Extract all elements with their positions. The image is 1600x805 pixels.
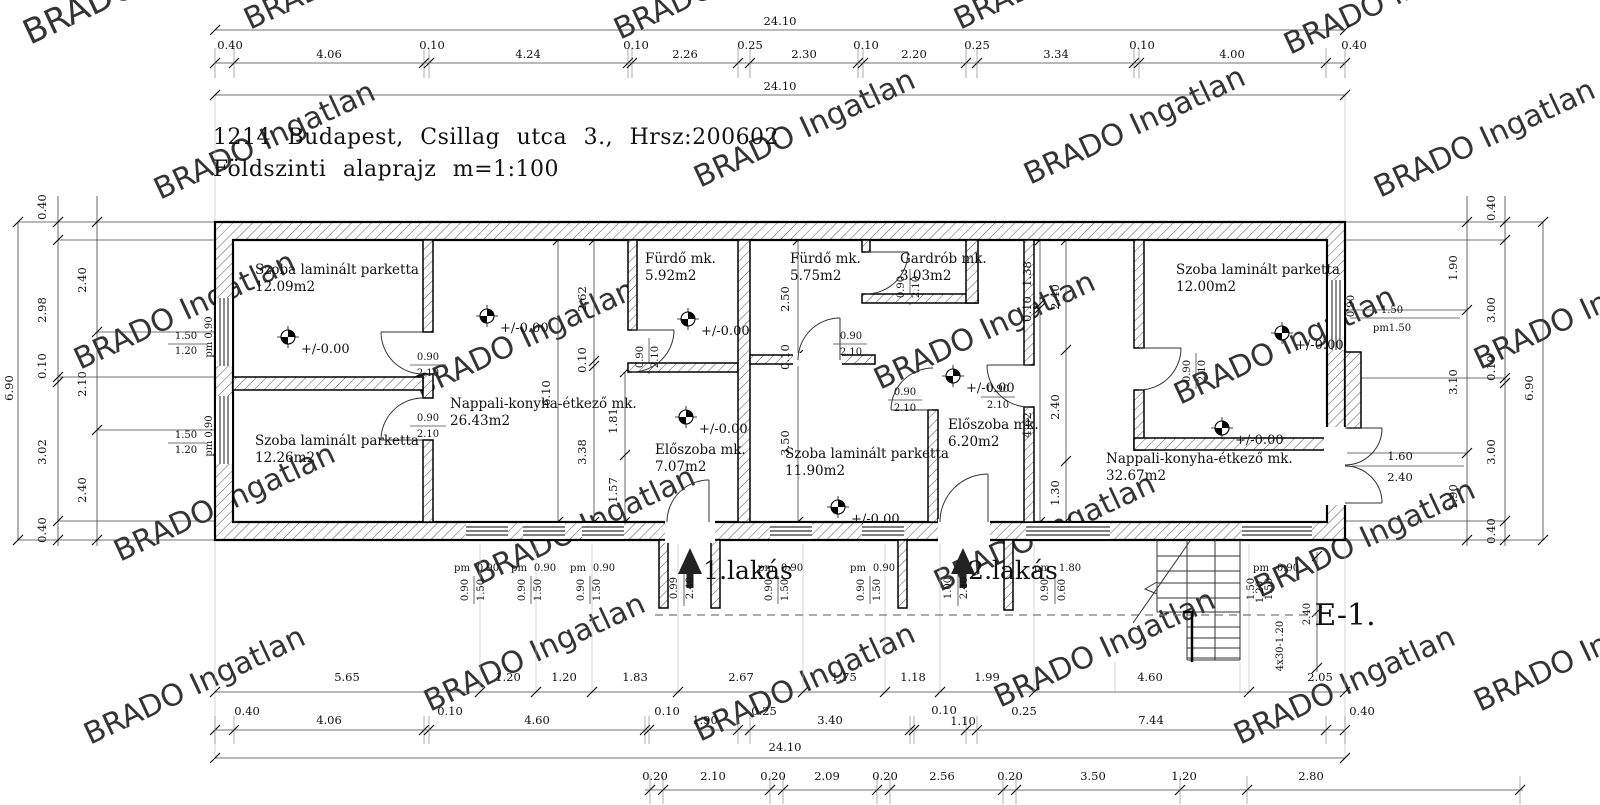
dim-label: 1.20 (175, 445, 197, 456)
dim-label: 2.40 (1048, 284, 1062, 310)
interior-wall (862, 240, 870, 252)
dim-label: 0.10 (1484, 355, 1498, 381)
dim-label: 0.90 (873, 563, 895, 574)
dim-label: pm 0.90 (204, 415, 215, 456)
watermark-text: BRADO Ingatlan (1369, 72, 1600, 205)
dim-label: 0.90 (417, 352, 439, 363)
dim-label: 2.10 (700, 769, 726, 783)
room-area: 26.43m2 (450, 413, 510, 429)
interior-wall (423, 440, 433, 522)
dim-label: 2.26 (672, 47, 698, 61)
dim-label: 6.90 (2, 375, 16, 401)
dim-label: 1.20 (495, 670, 521, 684)
interior-wall (233, 377, 423, 390)
dim-label: 0.40 (1349, 704, 1375, 718)
dim-label: 3.38 (575, 439, 589, 465)
interior-wall (738, 240, 750, 522)
dim-label: 0.40 (1484, 195, 1498, 221)
dim-label: 0.25 (751, 704, 777, 718)
level-label: +/-0.00 (699, 422, 748, 437)
dim-label: 1.60 (1387, 449, 1413, 463)
dim-label: 0.40 (35, 194, 49, 220)
door-opening (938, 519, 990, 543)
title-line-2: Földszinti alaprajz m=1:100 (213, 154, 779, 186)
dim-label: 4.06 (316, 47, 342, 61)
dim-label: 0.25 (1011, 704, 1037, 718)
dim-label: 2.09 (814, 769, 840, 783)
level-marker (277, 326, 299, 348)
dim-label: 2.40 (75, 267, 89, 293)
dim-label: 24.10 (764, 14, 797, 28)
dim-label: 2.10 (911, 276, 922, 298)
dim-label: 0.99 (669, 577, 680, 599)
interior-wall (928, 410, 938, 522)
title-line-1: 1214 Budapest, Csillag utca 3., Hrsz:200… (213, 122, 779, 154)
dim-label: 0.40 (1341, 38, 1367, 52)
dim-label: 3.34 (1043, 47, 1069, 61)
dim-label: 4.00 (1219, 47, 1245, 61)
title-block: 1214 Budapest, Csillag utca 3., Hrsz:200… (213, 122, 779, 186)
door-swing (940, 474, 988, 522)
dim-label: 0.90 (1346, 295, 1357, 317)
dim-label: pm (454, 563, 470, 574)
dim-label: 0.90 (460, 579, 471, 601)
dim-label: 0.10 (623, 38, 649, 52)
level-label: +/-0.00 (701, 324, 750, 339)
dim-label: 0.90 (477, 563, 499, 574)
door-opening (793, 353, 842, 366)
watermark-text: BRADO Ingatlan (79, 619, 311, 752)
dim-label: 2.05 (1307, 670, 1333, 684)
dim-label: 0.25 (737, 38, 763, 52)
dim-label: pm (570, 563, 586, 574)
interior-wall (1345, 352, 1361, 428)
level-label: +/-0.00 (500, 321, 549, 336)
dim-label: 0.10 (654, 704, 680, 718)
room-area: 7.07m2 (655, 459, 706, 475)
dim-label: 2.20 (901, 47, 927, 61)
dim-label: 24.10 (769, 740, 802, 754)
room-name: Fürdő mk. (645, 251, 716, 267)
dim-label: 3.00 (1484, 439, 1498, 465)
dim-label: 3.00 (1484, 297, 1498, 323)
dim-label: 3.40 (817, 713, 843, 727)
level-marker (827, 496, 849, 518)
dim-label: 0.20 (760, 769, 786, 783)
watermark-text: BRADO Ingatlan (1019, 59, 1251, 192)
dim-label: 0.60 (1057, 579, 1068, 601)
watermark-text: BRADO Ingatlan (1169, 279, 1401, 412)
room-area: 12.26m2 (255, 450, 315, 466)
interior-wall (1134, 438, 1327, 450)
dim-label: 2.10 (650, 346, 661, 368)
level-label: +/-0.00 (851, 512, 900, 527)
door-swing (1345, 466, 1382, 503)
level-label: +/-0.00 (301, 342, 350, 357)
door-swing (1345, 428, 1382, 465)
dim-label: 1.50 (1264, 578, 1275, 600)
interior-wall (898, 540, 907, 608)
dim-label: 1.38 (1020, 261, 1034, 287)
dim-label: 0.90 (856, 579, 867, 601)
door-opening (1324, 427, 1347, 505)
dim-label: 4.62 (1020, 412, 1034, 438)
dim-label: 0.90 (417, 413, 439, 424)
dim-label: pm (1253, 563, 1269, 574)
dim-label: 1.90 (1446, 484, 1460, 510)
dim-label: 2.80 (1298, 769, 1324, 783)
dim-label: 2.98 (35, 297, 49, 323)
watermark-text: BRADO Ingatlan (1279, 0, 1511, 62)
dim-label: 2.50 (778, 286, 792, 312)
level-label: +/-0.00 (1235, 433, 1284, 448)
dim-label: 2.40 (1048, 394, 1062, 420)
level-marker (476, 305, 498, 327)
dim-label: 0.90 (840, 331, 862, 342)
dim-label: 0.90 (534, 563, 556, 574)
dim-label: 2.10 (894, 403, 916, 414)
watermark-text: BRADO Ingatlan (409, 272, 641, 405)
dim-label: 1.50 (175, 430, 197, 441)
dim-label: 0.10 (1129, 38, 1155, 52)
dim-label: 0.10 (437, 704, 463, 718)
dim-label: 4.06 (316, 713, 342, 727)
dim-label: 1.50 (476, 579, 487, 601)
dim-label: 1.20 (175, 346, 197, 357)
dim-label: 2.56 (929, 769, 955, 783)
dim-label: 0.90 (517, 579, 528, 601)
dim-label: 0.10 (1020, 296, 1034, 322)
room-area: 3.03m2 (900, 268, 951, 284)
watermark-text: BRADO Ingatlan (989, 582, 1221, 715)
dim-label: 5.65 (334, 670, 360, 684)
room-name: Gardrób mk. (900, 251, 987, 267)
dim-label: 0.90 (1182, 360, 1193, 382)
dim-label: 0.10 (575, 347, 589, 373)
dim-label: 24.10 (764, 79, 797, 93)
dim-label: 0.10 (853, 38, 879, 52)
dim-label: 0.90 (576, 579, 587, 601)
dim-label: 1.50 (1381, 305, 1403, 316)
dim-label: 0.40 (35, 517, 49, 543)
dim-label: 0.40 (234, 704, 260, 718)
dim-label: 6.90 (1522, 375, 1536, 401)
level-marker (677, 308, 699, 330)
dim-label: 0.20 (997, 769, 1023, 783)
dim-label: 4.24 (515, 47, 541, 61)
dim-label: 2.10 (840, 347, 862, 358)
dim-label: 0.40 (217, 38, 243, 52)
dim-label: 2.67 (728, 670, 754, 684)
dim-label: 3.50 (778, 430, 792, 456)
dim-label: 0.20 (642, 769, 668, 783)
dim-label: 2.10 (987, 400, 1009, 411)
dim-label: 0.10 (35, 353, 49, 379)
dim-label: pm (850, 563, 866, 574)
dim-label: 0.20 (872, 769, 898, 783)
dim-label: 1.30 (1048, 480, 1062, 506)
dim-label: 0.90 (1040, 579, 1051, 601)
dim-label: 0.90 (764, 579, 775, 601)
room-area: 32.67m2 (1106, 468, 1166, 484)
dim-label: 0.90 (896, 276, 907, 298)
dim-label: 1.83 (622, 670, 648, 684)
dim-label: 2.10 (75, 371, 89, 397)
level-marker (675, 406, 697, 428)
watermark-text: BRADO Ingatlan (1229, 619, 1461, 752)
watermark-text: BRADO Ingatlan (239, 0, 471, 37)
dim-label: pm (1034, 563, 1050, 574)
interior-wall (966, 240, 978, 303)
interior-wall (423, 240, 433, 332)
dim-label: 0.90 (987, 384, 1009, 395)
dim-label: 1.10 (950, 714, 976, 728)
dim-label: 2.62 (575, 286, 589, 312)
watermark-text: BRADO Ingatlan (1469, 586, 1600, 719)
room-area: 11.90m2 (785, 463, 845, 479)
dim-label: 1.90 (1446, 255, 1460, 281)
room-name: Nappali-konyha-étkező mk. (1106, 451, 1293, 467)
interior-wall (628, 240, 637, 330)
floor-plan-drawing: BRADO IngatlanBRADO IngatlanBRADO Ingatl… (0, 0, 1600, 805)
watermark-layer: BRADO IngatlanBRADO IngatlanBRADO Ingatl… (17, 0, 1600, 752)
dim-label: 1.50 (592, 579, 603, 601)
dim-label: 1.18 (900, 670, 926, 684)
dim-label: 2.10 (1197, 360, 1208, 382)
room-area: 12.09m2 (255, 279, 315, 295)
dim-label: 0.10 (778, 344, 792, 370)
dim-label: 1.57 (606, 477, 620, 503)
dim-label: 0.40 (1484, 518, 1498, 544)
interior-wall (659, 540, 668, 608)
watermark-text: BRADO Ingatlan (419, 586, 651, 719)
dim-label: 1.81 (606, 408, 620, 434)
room-area: 6.20m2 (948, 434, 999, 450)
watermark-text: BRADO Ingatlan (949, 0, 1181, 37)
stair-direction-arrow (1145, 582, 1157, 594)
dim-label: 1.20 (1171, 769, 1197, 783)
dim-label: 7.44 (1138, 713, 1164, 727)
floor-plan-page: BRADO IngatlanBRADO IngatlanBRADO Ingatl… (0, 0, 1600, 805)
watermark-text: BRADO Ingatlan (689, 616, 921, 749)
dim-label: 4.60 (1137, 670, 1163, 684)
dim-label: 2.40 (75, 477, 89, 503)
room-area: 5.92m2 (645, 268, 696, 284)
dim-label: 4.60 (524, 713, 550, 727)
dim-label: 1.00 (943, 577, 954, 599)
dim-label: 3.10 (1446, 369, 1460, 395)
dim-label: 0.90 (635, 346, 646, 368)
dim-label: 1.20 (551, 670, 577, 684)
dim-label: 1.75 (831, 670, 857, 684)
dim-label: 0.90 (894, 387, 916, 398)
door-opening (665, 519, 715, 543)
dim-label: 2.40 (1302, 603, 1313, 625)
dim-label: 6.10 (539, 380, 553, 406)
dim-label: 1.80 (1059, 563, 1081, 574)
level-label: +/-0.00 (1295, 338, 1344, 353)
dim-label: 1.50 (175, 331, 197, 342)
room-name: Szoba laminált parketta (255, 433, 419, 449)
dim-label: 2.10 (417, 368, 439, 379)
dim-label: 1.50 (780, 579, 791, 601)
dim-label: pm (758, 563, 774, 574)
dim-label: 0.25 (964, 38, 990, 52)
dim-label: pm 0.90 (204, 316, 215, 357)
level-marker (1211, 417, 1233, 439)
dim-label: 2.30 (791, 47, 817, 61)
dim-label: 2.40 (685, 577, 696, 599)
dim-label: 2.10 (417, 429, 439, 440)
room-name: Előszoba mk. (655, 442, 746, 458)
dim-label: 0.10 (419, 38, 445, 52)
room-area: 5.75m2 (790, 268, 841, 284)
dim-label: pm1.50 (1373, 323, 1411, 334)
dim-label: 3.02 (35, 439, 49, 465)
dim-label: 0.90 (781, 563, 803, 574)
dim-label: 1.50 (533, 579, 544, 601)
dim-label: 0.90 (1277, 563, 1299, 574)
dim-label: 2.40 (959, 577, 970, 599)
room-name: Szoba laminált parketta (255, 262, 419, 278)
drawing-code: E-1. (1314, 598, 1375, 633)
room-name: Szoba laminált parketta (785, 446, 949, 462)
dim-label: 4x30-1.20 (1275, 621, 1286, 671)
room-area: 12.00m2 (1176, 279, 1236, 295)
dim-label: pm (511, 563, 527, 574)
dim-label: 2.40 (1387, 470, 1413, 484)
room-name: Fürdő mk. (790, 251, 861, 267)
interior-wall (1134, 240, 1144, 348)
dim-label: 1.90 (692, 713, 718, 727)
dim-label: 1.99 (974, 670, 1000, 684)
dim-label: 3.50 (1080, 769, 1106, 783)
dim-label: 0.90 (593, 563, 615, 574)
dim-label: 1.50 (872, 579, 883, 601)
room-name: Szoba laminált parketta (1176, 262, 1340, 278)
